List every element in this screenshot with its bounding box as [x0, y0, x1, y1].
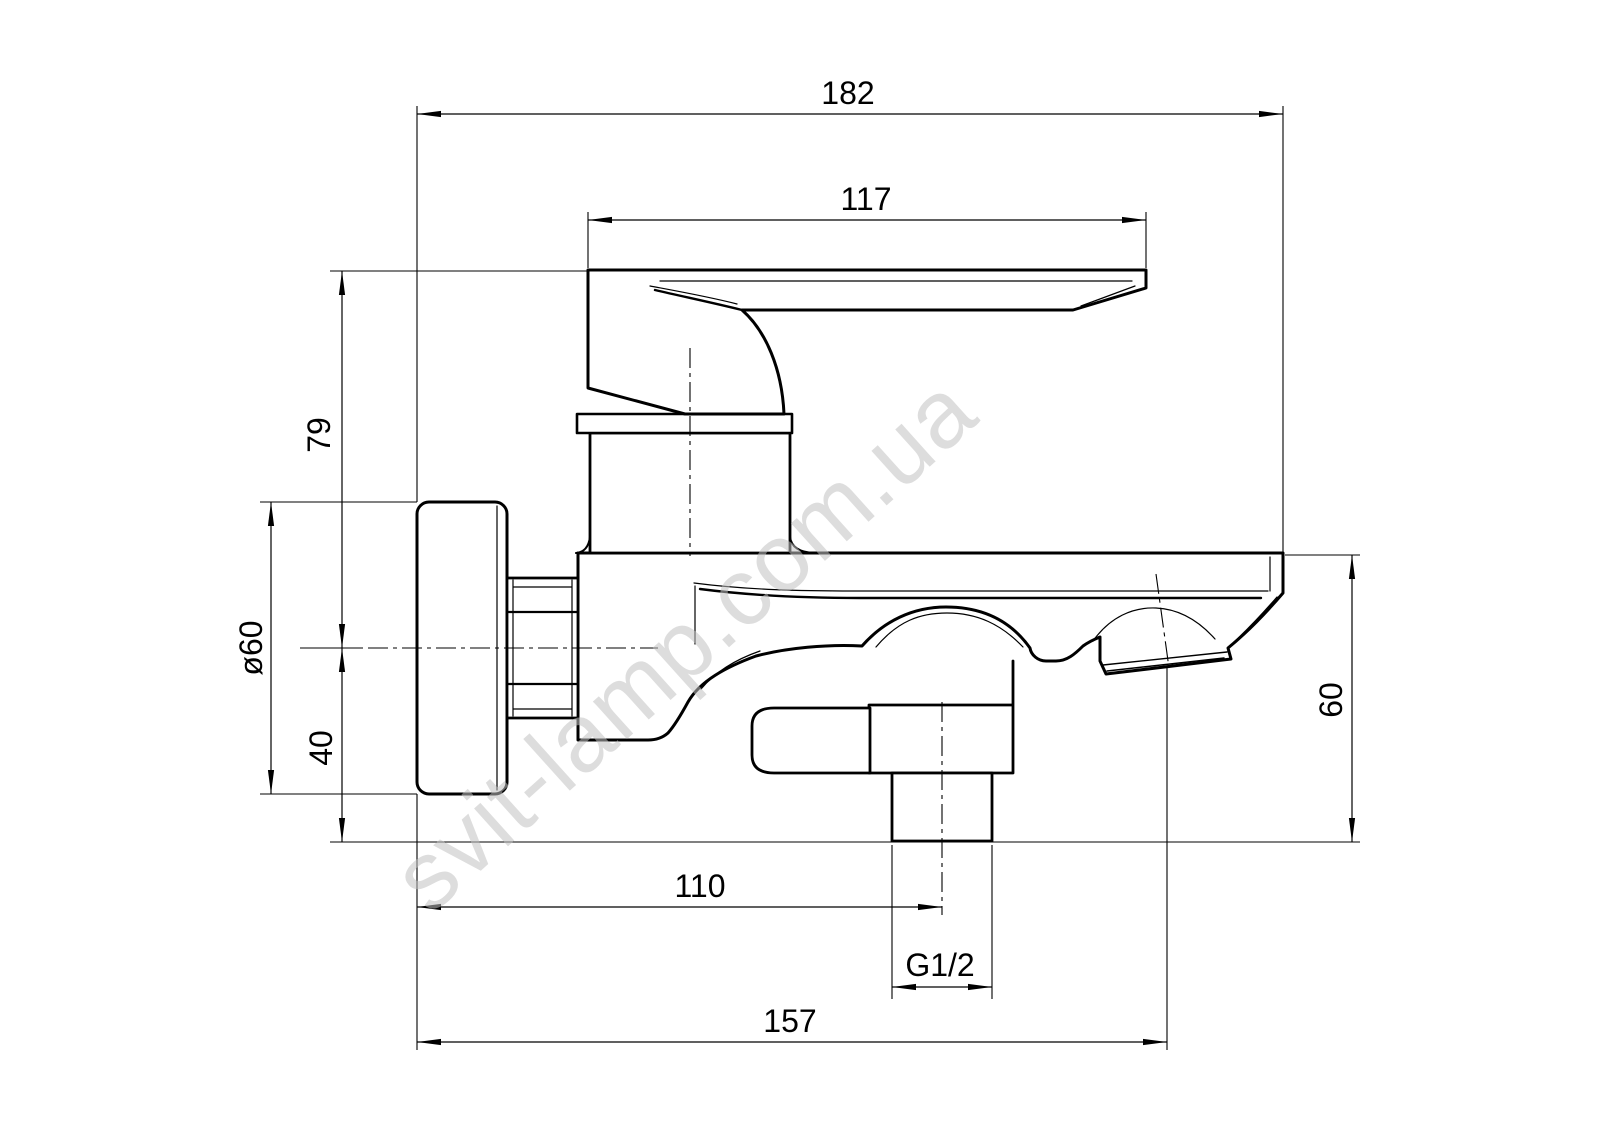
holder-bracket — [752, 708, 870, 773]
dim-label-g12: G1/2 — [905, 947, 974, 983]
dim-label-157: 157 — [763, 1003, 816, 1039]
dim-label-117: 117 — [840, 181, 891, 217]
dim-label-d60: ø60 — [233, 620, 269, 675]
technical-drawing-page: 182 117 79 ø60 40 60 110 G1/2 157 svit-l… — [0, 0, 1600, 1131]
lever-handle — [588, 270, 1146, 414]
dim-label-60: 60 — [1313, 682, 1349, 718]
dim-label-110: 110 — [674, 868, 725, 904]
dim-label-79: 79 — [301, 417, 337, 453]
diverter-block-fill — [869, 662, 1013, 773]
collar-ring — [577, 414, 792, 433]
bath-mixer-dimension-drawing: 182 117 79 ø60 40 60 110 G1/2 157 svit-l… — [0, 0, 1600, 1131]
dim-label-182: 182 — [821, 75, 874, 111]
dim-label-40: 40 — [303, 730, 339, 766]
